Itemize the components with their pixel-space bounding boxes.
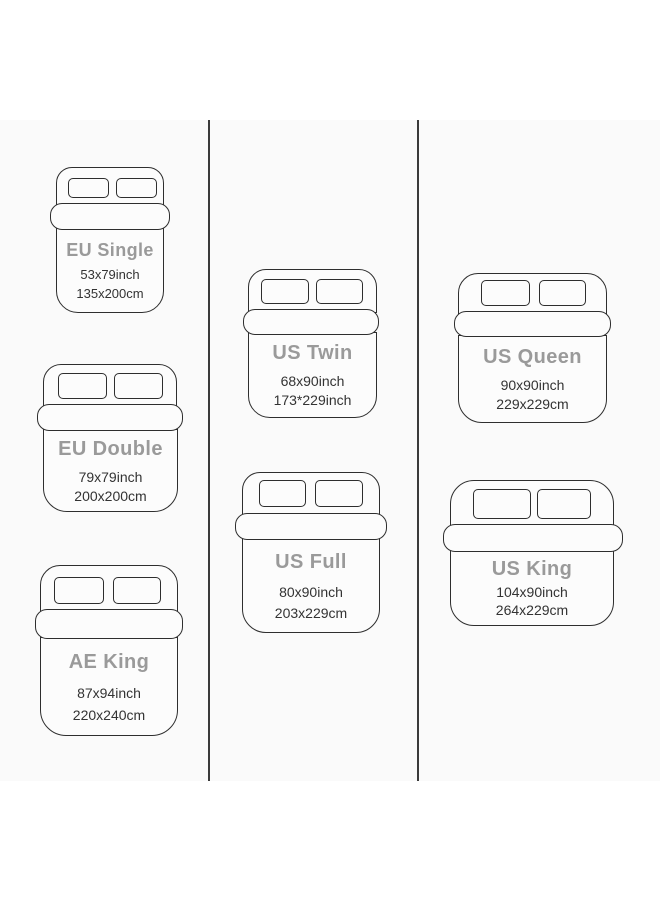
column-divider-left (208, 120, 210, 781)
bed-diagram-us-full: US Full 80x90inch 203x229cm (235, 472, 387, 633)
bed-headboard (248, 269, 377, 313)
bed-dimension-metric: 200x200cm (74, 488, 146, 504)
bed-size-chart: EU Single 53x79inch 135x200cm EU Double … (0, 0, 660, 900)
pillow-icon (259, 480, 306, 507)
bed-dimension-inches: 104x90inch (496, 584, 568, 600)
pillow-icon (539, 280, 586, 306)
bed-dimension-metric: 229x229cm (496, 396, 568, 412)
bed-body: AE King 87x94inch 220x240cm (40, 637, 178, 736)
pillow-icon (58, 373, 107, 399)
bed-dimension-metric: 220x240cm (73, 707, 145, 723)
bed-diagram-us-king: US King 104x90inch 264x229cm (443, 480, 623, 626)
bed-dimension-inches: 79x79inch (79, 469, 143, 485)
pillow-icon (261, 279, 309, 304)
bed-dimension-inches: 90x90inch (501, 377, 565, 393)
blanket-fold (454, 311, 611, 337)
bed-headboard (450, 480, 614, 528)
bed-body: US Twin 68x90inch 173*229inch (248, 332, 377, 418)
bed-size-label: US Twin (272, 342, 352, 364)
pillow-icon (315, 480, 363, 507)
blanket-fold (50, 203, 170, 230)
bed-size-label: AE King (69, 651, 150, 673)
bed-size-label: US Full (275, 551, 347, 573)
blanket-fold (37, 404, 183, 431)
blanket-fold (443, 524, 623, 552)
bed-body: US King 104x90inch 264x229cm (450, 550, 614, 626)
bed-diagram-us-queen: US Queen 90x90inch 229x229cm (454, 273, 611, 423)
column-divider-right (417, 120, 419, 781)
bed-body: EU Double 79x79inch 200x200cm (43, 429, 178, 512)
bed-dimension-metric: 173*229inch (274, 392, 352, 408)
bed-headboard (40, 565, 178, 613)
bed-headboard (43, 364, 177, 408)
bed-size-label: EU Double (58, 438, 163, 460)
bed-size-label: US King (492, 558, 573, 580)
pillow-icon (537, 489, 591, 519)
bed-headboard (242, 472, 380, 517)
bed-dimension-inches: 68x90inch (281, 373, 345, 389)
bed-dimension-inches: 53x79inch (80, 267, 139, 283)
bed-dimension-inches: 87x94inch (77, 685, 141, 701)
blanket-fold (235, 513, 387, 540)
bed-size-label: US Queen (483, 346, 582, 368)
bed-diagram-eu-double: EU Double 79x79inch 200x200cm (37, 364, 183, 512)
bed-body: US Queen 90x90inch 229x229cm (458, 335, 607, 423)
bed-dimension-metric: 203x229cm (275, 605, 347, 621)
pillow-icon (54, 577, 104, 604)
bed-dimension-metric: 135x200cm (76, 286, 143, 302)
bed-headboard (458, 273, 607, 315)
bed-dimension-inches: 80x90inch (279, 584, 343, 600)
bed-size-label: EU Single (66, 239, 154, 261)
blanket-fold (243, 309, 379, 335)
pillow-icon (116, 178, 157, 198)
pillow-icon (481, 280, 530, 306)
bed-diagram-us-twin: US Twin 68x90inch 173*229inch (243, 269, 379, 418)
bed-dimension-metric: 264x229cm (496, 602, 568, 618)
bed-body: US Full 80x90inch 203x229cm (242, 538, 380, 633)
bed-body: EU Single 53x79inch 135x200cm (56, 228, 164, 313)
pillow-icon (114, 373, 163, 399)
pillow-icon (473, 489, 531, 519)
blanket-fold (35, 609, 183, 639)
pillow-icon (68, 178, 109, 198)
pillow-icon (113, 577, 161, 604)
bed-diagram-eu-single: EU Single 53x79inch 135x200cm (50, 167, 170, 313)
bed-diagram-ae-king: AE King 87x94inch 220x240cm (35, 565, 183, 736)
pillow-icon (316, 279, 363, 304)
